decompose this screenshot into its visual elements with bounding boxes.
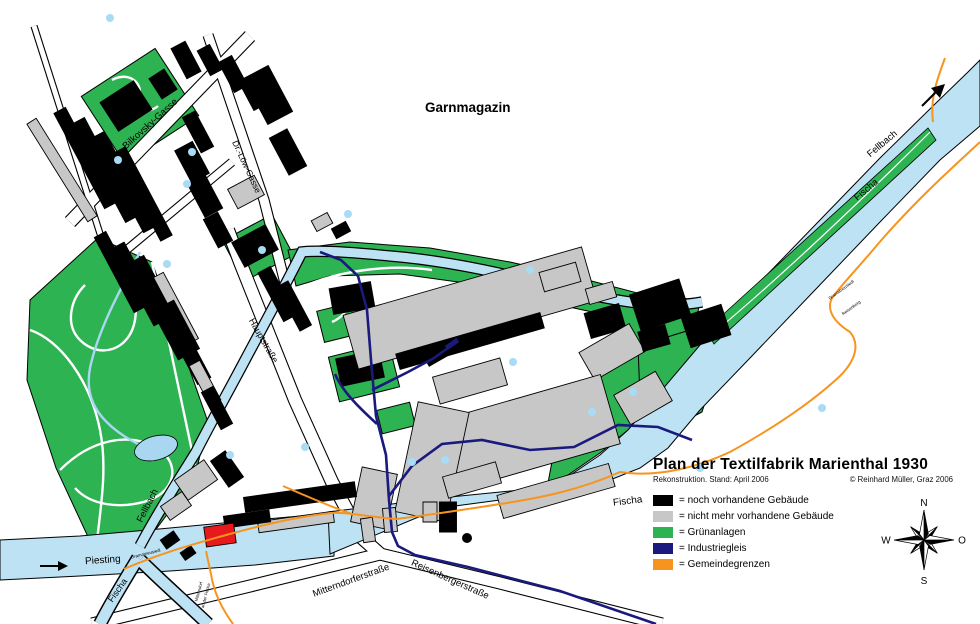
legend-swatch [653,543,673,554]
water-dot [301,443,309,451]
compass-star-icon: N O S W [878,494,970,590]
legend-swatch [653,511,673,522]
building-demolished [311,213,333,232]
legend-label: = Industriegleis [679,543,747,554]
water-dot [188,148,196,156]
water-dot [408,458,416,466]
building-highlight [204,523,236,547]
water-dot [441,456,449,464]
water-dot [183,180,191,188]
legend-swatch [653,495,673,506]
water-dot [344,210,352,218]
compass-rose: N O S W [878,494,970,590]
building-existing [269,129,306,175]
water-dot [526,266,534,274]
water-dot [588,408,596,416]
building-existing [440,502,457,532]
building-demolished [433,358,508,404]
water-dot [226,451,234,459]
map-label-fischa_mid: Fischa [612,494,643,509]
map-marker-dot [462,533,472,543]
map-page: GarnmagazinBilkovsky-GasseDr.-Löw-GasseH… [0,0,980,624]
map-label-boundary_reisenberg_e: Reisenberg [841,299,862,316]
compass-point [920,540,929,570]
legend-label: = Gemeindegrenzen [679,559,770,570]
park-area [377,402,416,434]
legend-label: = noch vorhandene Gebäude [679,495,809,506]
map-subtitle: Rekonstruktion. Stand: April 2006 [653,475,769,484]
map-title: Plan der Textilfabrik Marienthal 1930 [653,456,980,474]
water-dot [106,14,114,22]
building-demolished [423,502,437,522]
compass-west-label: W [881,536,891,547]
water-dot [818,404,826,412]
park-circle [60,508,72,520]
map-label-garnmagazin: Garnmagazin [425,100,511,115]
compass-point [924,536,954,545]
compass-point [894,536,924,545]
building-existing [331,221,350,238]
water-dot [258,246,266,254]
water-dot [629,388,637,396]
water-dot [114,156,122,164]
building-existing [171,41,201,79]
map-copyright: © Reinhard Müller, Graz 2006 [850,475,953,484]
title-block: Plan der Textilfabrik Marienthal 1930 Re… [653,456,980,572]
water-dot [509,358,517,366]
map-label-boundary_gramatneusiedl_e: Gramatneusiedl [827,279,855,301]
compass-south-label: S [921,576,928,587]
compass-north-label: N [920,498,927,509]
legend-swatch [653,559,673,570]
legend-label: = nicht mehr vorhandene Gebäude [679,511,834,522]
water-dot [163,260,171,268]
legend-swatch [653,527,673,538]
compass-point [920,510,929,540]
compass-east-label: O [958,536,966,547]
legend-label: = Grünanlagen [679,527,745,538]
